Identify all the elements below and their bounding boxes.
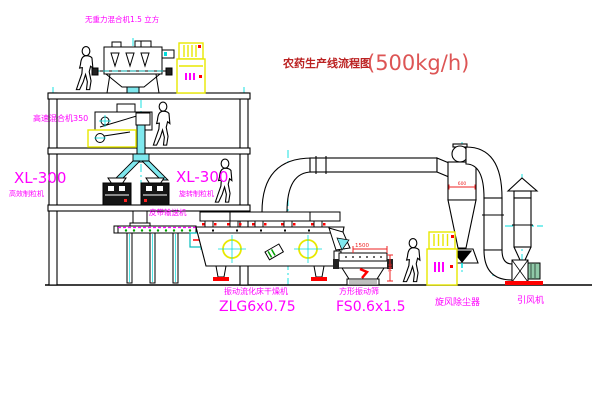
label-granulator-left-model: XL-300: [14, 169, 66, 187]
label-fan: 引风机: [517, 294, 544, 306]
dim-cyclone-diameter: 600: [458, 181, 467, 187]
gravity-free-mixer: [92, 41, 174, 93]
dim-sieve-length: 1500: [355, 243, 369, 249]
worker-figure: [403, 239, 420, 282]
label-cyclone: 旋风除尘器: [435, 296, 480, 308]
discharge-chute: [130, 211, 150, 226]
dim-sieve-height: 740: [388, 263, 394, 272]
page-title-capacity: (500kg/h): [367, 51, 469, 75]
worker-figure: [76, 47, 93, 90]
label-dryer-name: 振动流化床干燥机: [224, 286, 288, 296]
granulator-left: [103, 178, 131, 205]
label-belt-conveyor: 皮带输送机: [149, 207, 187, 217]
high-speed-mixer: [88, 104, 152, 154]
control-cabinet-top: [177, 43, 205, 93]
vibrating-sieve: [329, 228, 393, 285]
belt-conveyor: [114, 226, 202, 283]
diagram-svg: 无重力混合机1.5 立方 农药生产线流程图 (500kg/h) 高速混合机350…: [0, 0, 600, 403]
granulator-right: [141, 178, 169, 205]
label-sieve-model: FS0.6x1.5: [336, 299, 406, 315]
label-granulator-right-model: XL-300: [176, 168, 228, 186]
label-granulator-left-name: 高效制粒机: [9, 189, 44, 198]
label-sieve-name: 方形振动筛: [339, 286, 379, 296]
label-granulator-right-name: 旋转制粒机: [179, 189, 214, 198]
control-cabinet-right: [427, 232, 457, 285]
worker-figure: [153, 102, 170, 145]
exhaust-duct: [262, 156, 449, 212]
page-title: 农药生产线流程图: [282, 56, 371, 70]
process-flow-diagram: 无重力混合机1.5 立方 农药生产线流程图 (500kg/h) 高速混合机350…: [0, 0, 600, 403]
exhaust-stack: [508, 178, 537, 260]
label-dryer-model: ZLG6x0.75: [219, 299, 296, 315]
label-high-speed-mixer: 高速混合机350: [33, 113, 88, 123]
fluid-bed-dryer: [196, 212, 344, 281]
label-gravity-mixer: 无重力混合机1.5 立方: [85, 14, 160, 24]
